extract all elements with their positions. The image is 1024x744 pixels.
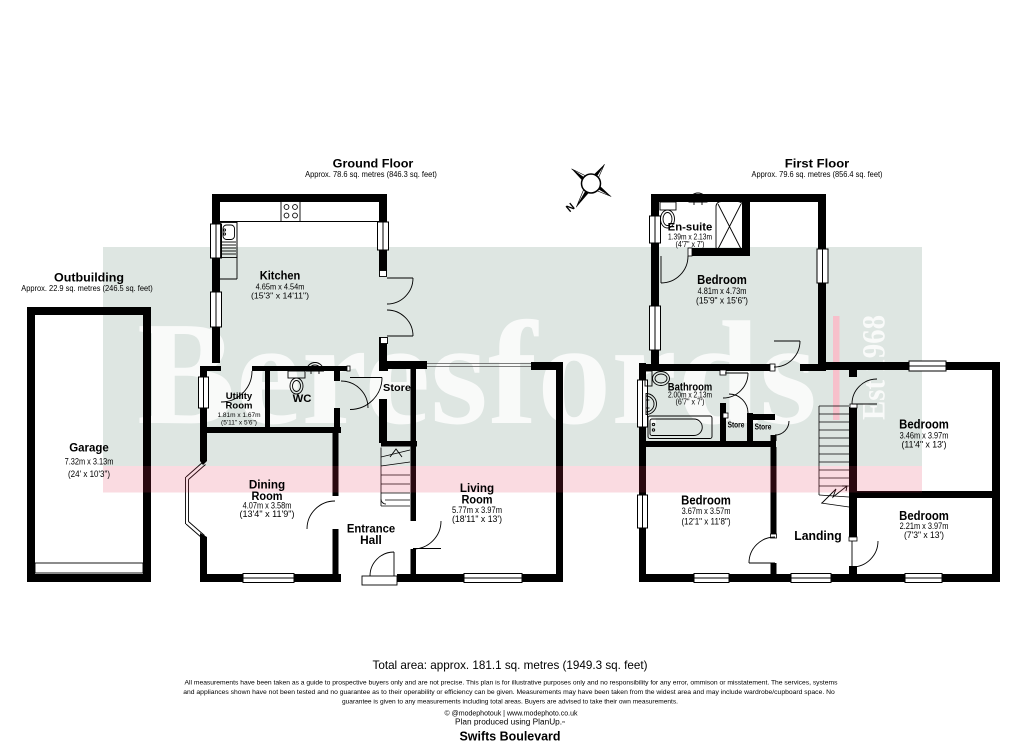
svg-text:(15'9" x 15'6"): (15'9" x 15'6") (696, 296, 748, 306)
svg-text:WC: WC (293, 393, 312, 405)
svg-text:Approx. 22.9 sq. metres (246.5: Approx. 22.9 sq. metres (246.5 sq. feet) (21, 284, 153, 293)
svg-text:All measurements have been tak: All measurements have been taken as a gu… (185, 680, 839, 687)
svg-text:(18'11" x 13'): (18'11" x 13') (452, 514, 502, 524)
svg-text:and appliances shown have not: and appliances shown have not been teste… (183, 689, 835, 696)
svg-text:Bedroom: Bedroom (697, 272, 747, 287)
svg-text:Total area: approx. 181.1 sq.: Total area: approx. 181.1 sq. metres (19… (373, 658, 648, 672)
svg-text:1.81m x 1.67m: 1.81m x 1.67m (218, 412, 261, 419)
svg-text:7.32m x 3.13m: 7.32m x 3.13m (65, 457, 114, 467)
svg-text:N: N (564, 201, 578, 215)
svg-text:(5'11" x 5'6"): (5'11" x 5'6") (221, 420, 257, 427)
svg-text:© @modephotouk | www.modephoto: © @modephotouk | www.modephoto.co.uk (445, 709, 578, 718)
svg-text:Store: Store (755, 422, 772, 431)
svg-text:Hall: Hall (360, 533, 382, 547)
svg-text:Plan produced using PlanUp.▫: Plan produced using PlanUp.▫ (455, 717, 565, 726)
svg-text:Landing: Landing (794, 528, 841, 543)
svg-text:Store: Store (728, 420, 745, 429)
svg-text:Store: Store (383, 382, 411, 394)
svg-text:Outbuilding: Outbuilding (54, 272, 124, 285)
svg-text:3.67m x 3.57m: 3.67m x 3.57m (682, 506, 731, 516)
svg-text:(24' x 10'3"): (24' x 10'3") (68, 469, 110, 479)
svg-text:(7'3" x 13'): (7'3" x 13') (904, 530, 944, 540)
svg-text:(4'7" x 7'): (4'7" x 7') (676, 240, 705, 249)
svg-text:Garage: Garage (69, 441, 109, 455)
svg-text:4.81m x 4.73m: 4.81m x 4.73m (698, 286, 747, 296)
svg-text:(6'7" x 7'): (6'7" x 7') (676, 398, 705, 407)
svg-text:Room: Room (226, 401, 253, 412)
svg-text:Ground Floor: Ground Floor (333, 158, 414, 171)
svg-text:Approx. 78.6 sq. metres (846.3: Approx. 78.6 sq. metres (846.3 sq. feet) (305, 170, 437, 179)
svg-text:guarantee is given to any meas: guarantee is given to any measurements i… (342, 699, 678, 706)
svg-text:Approx. 79.6 sq. metres (856.4: Approx. 79.6 sq. metres (856.4 sq. feet) (752, 170, 883, 179)
svg-text:(13'4" x 11'9"): (13'4" x 11'9") (240, 509, 295, 519)
svg-text:(15'3" x 14'11"): (15'3" x 14'11") (251, 291, 309, 301)
svg-text:(11'4" x 13'): (11'4" x 13') (902, 439, 947, 449)
svg-text:Swifts Boulevard: Swifts Boulevard (460, 729, 561, 744)
svg-text:(12'1" x 11'8"): (12'1" x 11'8") (682, 517, 731, 527)
svg-text:First Floor: First Floor (785, 158, 850, 171)
